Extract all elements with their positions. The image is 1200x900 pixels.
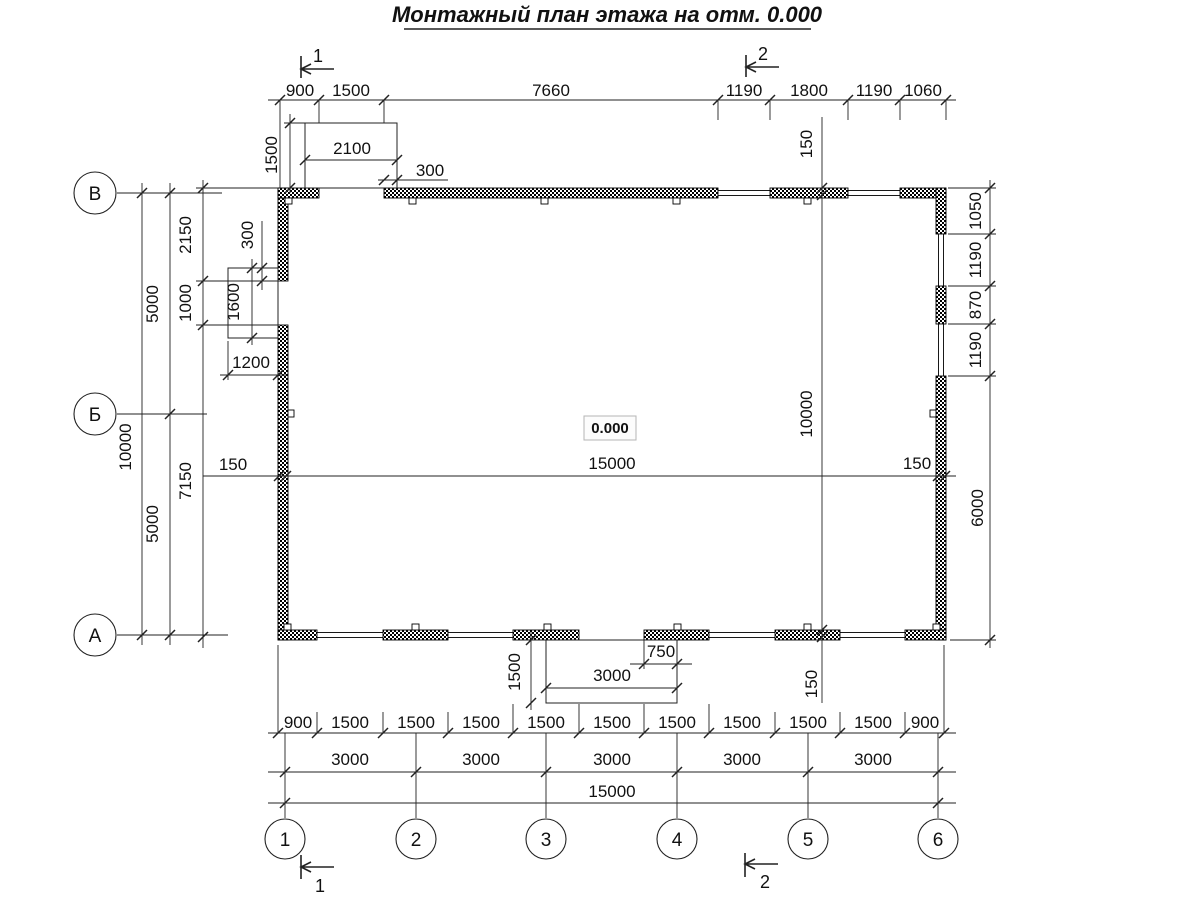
dim-label: 1190: [726, 81, 763, 100]
dim-label: 5000: [143, 285, 162, 323]
dim-label: 1500: [505, 653, 524, 691]
dim-label: 6000: [968, 489, 987, 527]
dim-label: 3000: [593, 750, 631, 769]
elevation-value: 0.000: [591, 420, 629, 437]
bottom-row1-labels: 900 1500 1500 1500 1500 1500 1500 1500 1…: [284, 713, 939, 732]
section-markers: 1 2 1 2: [301, 44, 779, 896]
dim-label: 900: [911, 713, 939, 732]
dim-label: 1500: [332, 81, 370, 100]
floor-plan-drawing: Монтажный план этажа на отм. 0.000: [0, 0, 1200, 900]
dim-label: 15000: [588, 454, 635, 473]
axis-label: 6: [933, 830, 944, 851]
section-label: 1: [313, 46, 323, 66]
page-title: Монтажный план этажа на отм. 0.000: [392, 2, 823, 27]
axis-label: В: [89, 184, 102, 205]
axis-label: 5: [803, 830, 814, 851]
dim-label: 3000: [331, 750, 369, 769]
walls: [278, 188, 946, 640]
axis-label: Б: [89, 405, 101, 426]
dim-label: 1500: [593, 713, 631, 732]
dim-label: 1500: [854, 713, 892, 732]
dim-label: 150: [903, 454, 931, 473]
dim-label: 300: [416, 161, 444, 180]
porches: [228, 123, 677, 703]
section-label: 2: [758, 44, 768, 64]
dim-label: 1500: [462, 713, 500, 732]
bottom-row3-labels: 15000: [588, 782, 635, 801]
dim-label: 1060: [904, 81, 942, 100]
dim-label: 1500: [658, 713, 696, 732]
dim-label: 150: [219, 455, 247, 474]
dim-label: 10000: [116, 423, 135, 470]
section-label: 2: [760, 872, 770, 892]
dim-label: 900: [284, 713, 312, 732]
middle-dimension-labels: 150 15000 150 150 10000 150: [219, 130, 931, 698]
dim-label: 900: [286, 81, 314, 100]
dim-label: 3000: [462, 750, 500, 769]
dim-label: 3000: [593, 666, 631, 685]
dim-label: 150: [797, 130, 816, 158]
dim-label: 750: [647, 642, 675, 661]
dim-label: 1190: [856, 81, 893, 100]
right-dimension-labels: 1050 1190 870 1190 6000: [966, 192, 987, 527]
dim-label: 10000: [797, 390, 816, 437]
dim-label: 3000: [854, 750, 892, 769]
dim-label: 150: [802, 670, 821, 698]
dim-label: 1500: [331, 713, 369, 732]
mounting-tabs: [284, 198, 940, 630]
dim-label: 1200: [232, 353, 270, 372]
dim-label: 1500: [527, 713, 565, 732]
axis-label: 3: [541, 830, 552, 851]
left-axis-markers: В Б А: [74, 172, 116, 656]
section-label: 1: [315, 876, 325, 896]
dimension-ticks: [137, 95, 995, 808]
dim-label: 1190: [966, 332, 985, 369]
dim-label: 3000: [723, 750, 761, 769]
dim-label: 1500: [789, 713, 827, 732]
dim-label: 1500: [723, 713, 761, 732]
dim-label: 2150: [176, 216, 195, 254]
bottom-axis-markers: 1 2 3 4 5 6: [265, 819, 958, 859]
drawing-title: Монтажный план этажа на отм. 0.000: [392, 2, 823, 29]
top-dimension-labels: 900 1500 7660 1190 1800 1190 1060 2100 1…: [262, 81, 942, 180]
axis-label: 4: [672, 830, 683, 851]
dimension-lines: [117, 100, 996, 818]
drawing-canvas: Монтажный план этажа на отм. 0.000: [0, 0, 1200, 900]
dim-label: 5000: [143, 505, 162, 543]
axis-label: А: [89, 626, 102, 647]
dim-label: 7660: [532, 81, 570, 100]
windows: [317, 191, 944, 638]
dim-label: 15000: [588, 782, 635, 801]
bottom-porch-labels: 1500 750 3000: [505, 642, 675, 691]
left-dimension-labels: 10000 5000 5000 2150 1000 7150 300 1600 …: [116, 216, 270, 543]
elevation-mark: 0.000: [584, 416, 636, 440]
dim-label: 1000: [176, 284, 195, 322]
dim-label: 1500: [262, 136, 281, 174]
dim-label: 1600: [224, 283, 243, 321]
dim-label: 1500: [397, 713, 435, 732]
dim-label: 870: [966, 291, 985, 319]
axis-label: 1: [280, 830, 291, 851]
dim-label: 1800: [790, 81, 828, 100]
dim-label: 2100: [333, 139, 371, 158]
dim-label: 7150: [176, 462, 195, 500]
dim-label: 1050: [966, 192, 985, 230]
axis-label: 2: [411, 830, 422, 851]
dim-label: 300: [238, 221, 257, 249]
dim-label: 1190: [966, 242, 985, 279]
